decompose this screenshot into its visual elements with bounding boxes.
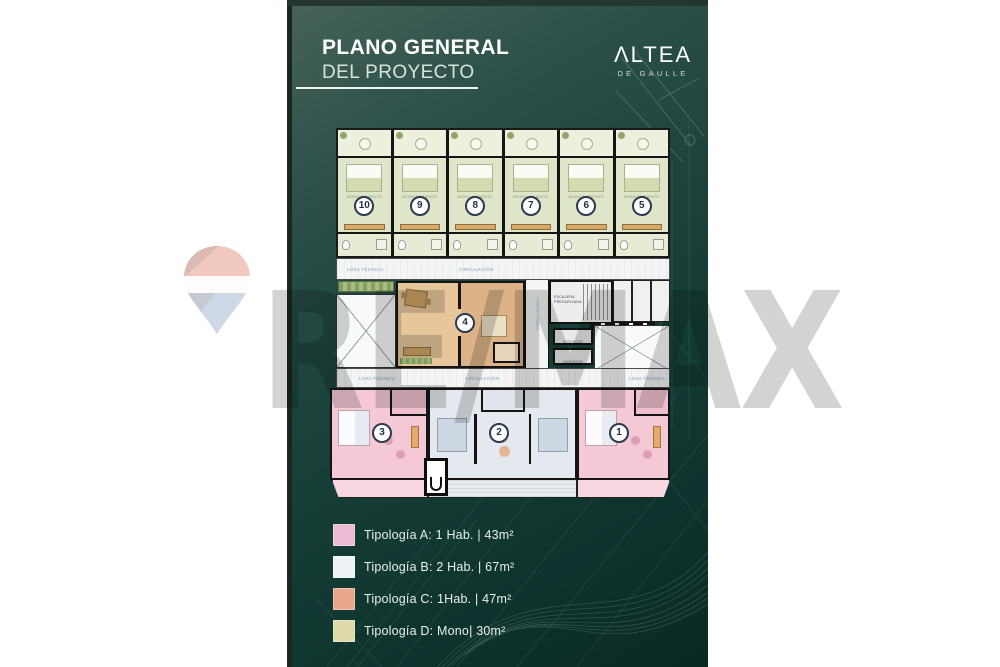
legend-item-tipologia-c: Tipología C: 1Hab. | 47m² [333, 588, 514, 610]
unit-9: MONOAMBIENTE 9 [394, 130, 450, 256]
balcony [338, 130, 391, 158]
stair-treads [583, 284, 609, 320]
technical-slab-left [336, 294, 396, 368]
dresser [411, 426, 419, 448]
balcony [394, 130, 447, 158]
circulation-label: CIRCULACIÓN [459, 267, 493, 272]
bed [346, 164, 382, 192]
page-title: PLANO GENERAL DEL PROYECTO [322, 36, 509, 84]
legend-label-c: Tipología C: 1Hab. | 47m² [364, 592, 511, 606]
balcony [505, 130, 558, 158]
unit-6: MONOAMBIENTE 6 [560, 130, 616, 256]
bed [513, 164, 549, 192]
legend-label-a: Tipología A: 1 Hab. | 43m² [364, 528, 514, 542]
bathroom [634, 390, 668, 416]
unit-number-badge: 4 [455, 313, 475, 333]
furniture [631, 436, 640, 445]
corridor-upper: LOSA TÉCNICA CIRCULACIÓN [336, 258, 670, 280]
legend-swatch-c [333, 588, 355, 610]
planter-strip [338, 281, 394, 292]
elevator-1: ASCENSOR [553, 328, 593, 345]
bed [481, 315, 507, 337]
remax-balloon-icon [182, 245, 252, 335]
legend-swatch-a [333, 524, 355, 546]
pressurized-stairs: ESCALERA PRESURIZADA [549, 280, 613, 324]
stairs-label: ESCALERA PRESURIZADA [554, 295, 586, 305]
kitchen-counter [566, 224, 607, 230]
losa-tecnica-label: LOSA TÉCNICA [359, 376, 395, 381]
circulation-label: CIRCULACIÓN [465, 376, 499, 381]
interior-wall [458, 336, 461, 366]
balcony [449, 130, 502, 158]
bathroom [338, 232, 391, 256]
title-line-2: DEL PROYECTO [322, 62, 509, 84]
bathroom [481, 390, 525, 412]
corridor-lower: LOSA TÉCNICA CIRCULACIÓN LOSA TÉCNICA [336, 368, 670, 388]
dining-table [404, 289, 428, 309]
unit-number-badge: 8 [465, 196, 485, 216]
legend-item-tipologia-a: Tipología A: 1 Hab. | 43m² [333, 524, 514, 546]
brand-wordmark: ΛLTEA [601, 42, 705, 68]
bed [624, 164, 660, 192]
dresser [653, 426, 661, 448]
terrace-unit-2 [428, 480, 577, 498]
corridor-vertical: CIRCULACIÓN [525, 280, 549, 368]
brand-logo: ΛLTEA DE GAULLE [601, 42, 705, 78]
balcony [560, 130, 613, 158]
unit-number-badge: 9 [410, 196, 430, 216]
kitchen-counter [511, 224, 552, 230]
typology-legend: Tipología A: 1 Hab. | 43m² Tipología B: … [333, 524, 514, 652]
legend-swatch-d [333, 620, 355, 642]
title-underline [296, 87, 478, 89]
panel-left-edge [287, 0, 292, 667]
legend-label-b: Tipología B: 2 Hab. | 67m² [364, 560, 514, 574]
unit-number-badge: 5 [632, 196, 652, 216]
bathroom [390, 390, 426, 416]
unit-7: MONOAMBIENTE 7 [505, 130, 561, 256]
legend-item-tipologia-b: Tipología B: 2 Hab. | 67m² [333, 556, 514, 578]
unit-10: MONOAMBIENTE 10 [338, 130, 394, 256]
kitchen-counter [400, 224, 441, 230]
bathroom [493, 342, 520, 363]
legend-swatch-b [333, 556, 355, 578]
balcony [616, 130, 669, 158]
elevator-2: ASCENSOR [553, 348, 593, 365]
brand-subtitle: DE GAULLE [601, 69, 705, 78]
unit-number-badge: 6 [576, 196, 596, 216]
panel-top-edge [287, 0, 708, 6]
technical-slab-right [594, 325, 670, 371]
bed [538, 418, 568, 452]
bed [457, 164, 493, 192]
losa-tecnica-label: LOSA TÉCNICA [347, 267, 383, 272]
legend-label-d: Tipología D: Mono| 30m² [364, 624, 505, 638]
unit-number-badge: 1 [609, 423, 629, 443]
interior-wall [458, 283, 461, 309]
balcony-unit-3 [332, 480, 428, 498]
unit-number-badge: 7 [521, 196, 541, 216]
unit-5: MONOAMBIENTE 5 [616, 130, 669, 256]
title-line-1: PLANO GENERAL [322, 36, 509, 60]
kitchen-counter [455, 224, 496, 230]
bathroom [505, 232, 558, 256]
bed [338, 410, 370, 446]
circulation-label: CIRCULACIÓN [535, 298, 540, 330]
unit-number-badge: 2 [489, 423, 509, 443]
interior-wall [529, 414, 532, 464]
bed [437, 418, 467, 452]
unit-number-badge: 10 [354, 196, 374, 216]
kitchen-counter [344, 224, 385, 230]
bed [568, 164, 604, 192]
sofa [403, 347, 431, 356]
bathroom [560, 232, 613, 256]
bathroom [394, 232, 447, 256]
bathroom [449, 232, 502, 256]
service-rooms [613, 280, 670, 322]
studio-units-row: MONOAMBIENTE 10 MONOAMBIENTE 9 MONOAMBIE… [336, 128, 670, 258]
unit-8: MONOAMBIENTE 8 [449, 130, 505, 256]
bathroom [616, 232, 669, 256]
plants [400, 358, 432, 364]
elevator-label: ASCENSOR [563, 340, 583, 344]
interior-wall [474, 414, 477, 464]
unit-number-badge: 3 [372, 423, 392, 443]
building-entry [424, 458, 448, 496]
bed [402, 164, 438, 192]
losa-tecnica-label: LOSA TÉCNICA [629, 376, 665, 381]
balcony-unit-1 [577, 480, 670, 498]
legend-item-tipologia-d: Tipología D: Mono| 30m² [333, 620, 514, 642]
kitchen-counter [622, 224, 663, 230]
elevator-label: ASCENSOR [563, 360, 583, 364]
floor-plan: MONOAMBIENTE 10 MONOAMBIENTE 9 MONOAMBIE… [330, 128, 670, 500]
